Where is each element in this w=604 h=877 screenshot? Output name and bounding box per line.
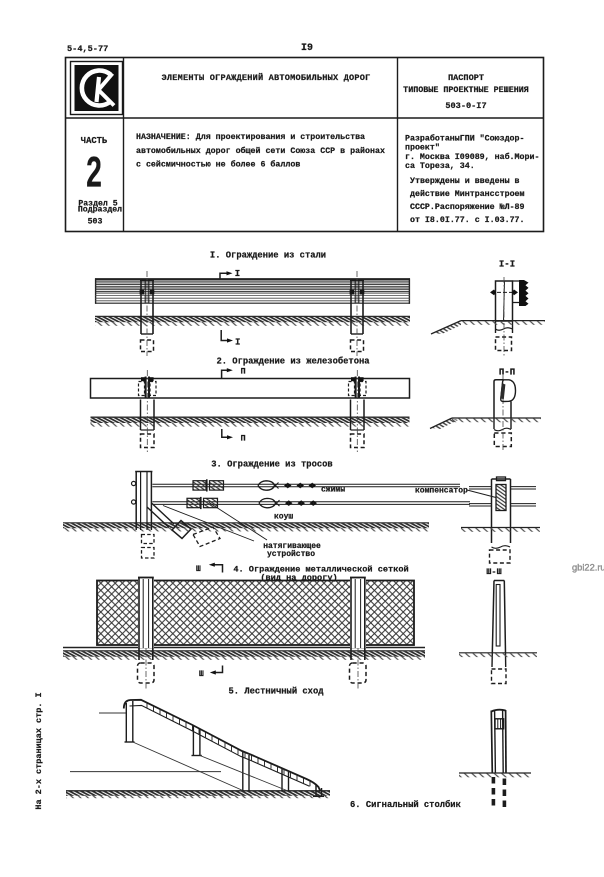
svg-text:действие Минтрансстроем: действие Минтрансстроем — [410, 189, 525, 199]
svg-text:2: 2 — [86, 148, 102, 196]
svg-text:проект": проект" — [405, 143, 440, 153]
svg-text:2. Ограждение из железобетона: 2. Ограждение из железобетона — [216, 356, 370, 367]
svg-text:сжимы: сжимы — [321, 486, 345, 495]
svg-text:Ш: Ш — [196, 565, 201, 574]
svg-text:РазработаныГПИ "Союздор-: РазработаныГПИ "Союздор- — [405, 132, 525, 143]
svg-text:gbi22.ru: gbi22.ru — [572, 563, 604, 573]
svg-text:Ш: Ш — [199, 670, 204, 679]
svg-text:с сейсмичностью не более 6 бал: с сейсмичностью не более 6 баллов — [136, 159, 300, 170]
svg-text:I. Ограждение из стали: I. Ограждение из стали — [210, 251, 326, 261]
svg-text:503: 503 — [88, 218, 103, 227]
svg-text:5-4,5-77: 5-4,5-77 — [67, 44, 108, 54]
svg-text:автомобильных дорог общей сети: автомобильных дорог общей сети Союза ССР… — [136, 145, 385, 156]
svg-text:I: I — [235, 338, 240, 348]
svg-text:ЧАСТЬ: ЧАСТЬ — [81, 136, 108, 146]
svg-text:Утверждены и введены в: Утверждены и введены в — [410, 177, 520, 186]
svg-text:На 2-х страницах стр. I: На 2-х страницах стр. I — [34, 692, 44, 809]
svg-text:I: I — [235, 269, 240, 279]
svg-text:устройство: устройство — [267, 550, 315, 559]
svg-text:П-П: П-П — [499, 368, 515, 378]
svg-text:5. Лестничный сход: 5. Лестничный сход — [228, 687, 324, 697]
svg-text:503-0-I7: 503-0-I7 — [445, 101, 486, 111]
svg-text:I-I: I-I — [499, 260, 515, 270]
svg-text:са Тореза, 34.: са Тореза, 34. — [405, 162, 475, 171]
svg-text:Подраздел: Подраздел — [78, 206, 122, 215]
svg-text:П: П — [241, 433, 246, 443]
svg-text:I9: I9 — [301, 43, 313, 54]
svg-text:от I8.0I.77. с I.03.77.: от I8.0I.77. с I.03.77. — [410, 216, 525, 225]
svg-text:компенсатор: компенсатор — [415, 487, 468, 496]
svg-text:СССР.Распоряжение №Л-89: СССР.Распоряжение №Л-89 — [410, 203, 525, 212]
svg-text:П: П — [241, 366, 246, 376]
svg-text:ЭЛЕМЕНТЫ ОГРАЖДЕНИЙ АВТОМОБИЛЬ: ЭЛЕМЕНТЫ ОГРАЖДЕНИЙ АВТОМОБИЛЬНЫХ ДОРОГ — [162, 72, 371, 83]
svg-text:г. Москва I09089, наб.Мори-: г. Москва I09089, наб.Мори- — [405, 151, 539, 162]
svg-text:коуш: коуш — [274, 513, 293, 522]
svg-text:ТИПОВЫЕ ПРОЕКТНЫЕ РЕШЕНИЯ: ТИПОВЫЕ ПРОЕКТНЫЕ РЕШЕНИЯ — [403, 85, 529, 95]
svg-text:НАЗНАЧЕНИЕ: Для проектирования: НАЗНАЧЕНИЕ: Для проектирования и строите… — [136, 133, 365, 142]
svg-text:6. Сигнальный столбик: 6. Сигнальный столбик — [350, 799, 461, 810]
svg-text:ПАСПОРТ: ПАСПОРТ — [448, 73, 484, 83]
svg-text:3. Ограждение из тросов: 3. Ограждение из тросов — [211, 460, 332, 470]
svg-text:Ш-Ш: Ш-Ш — [486, 567, 501, 577]
